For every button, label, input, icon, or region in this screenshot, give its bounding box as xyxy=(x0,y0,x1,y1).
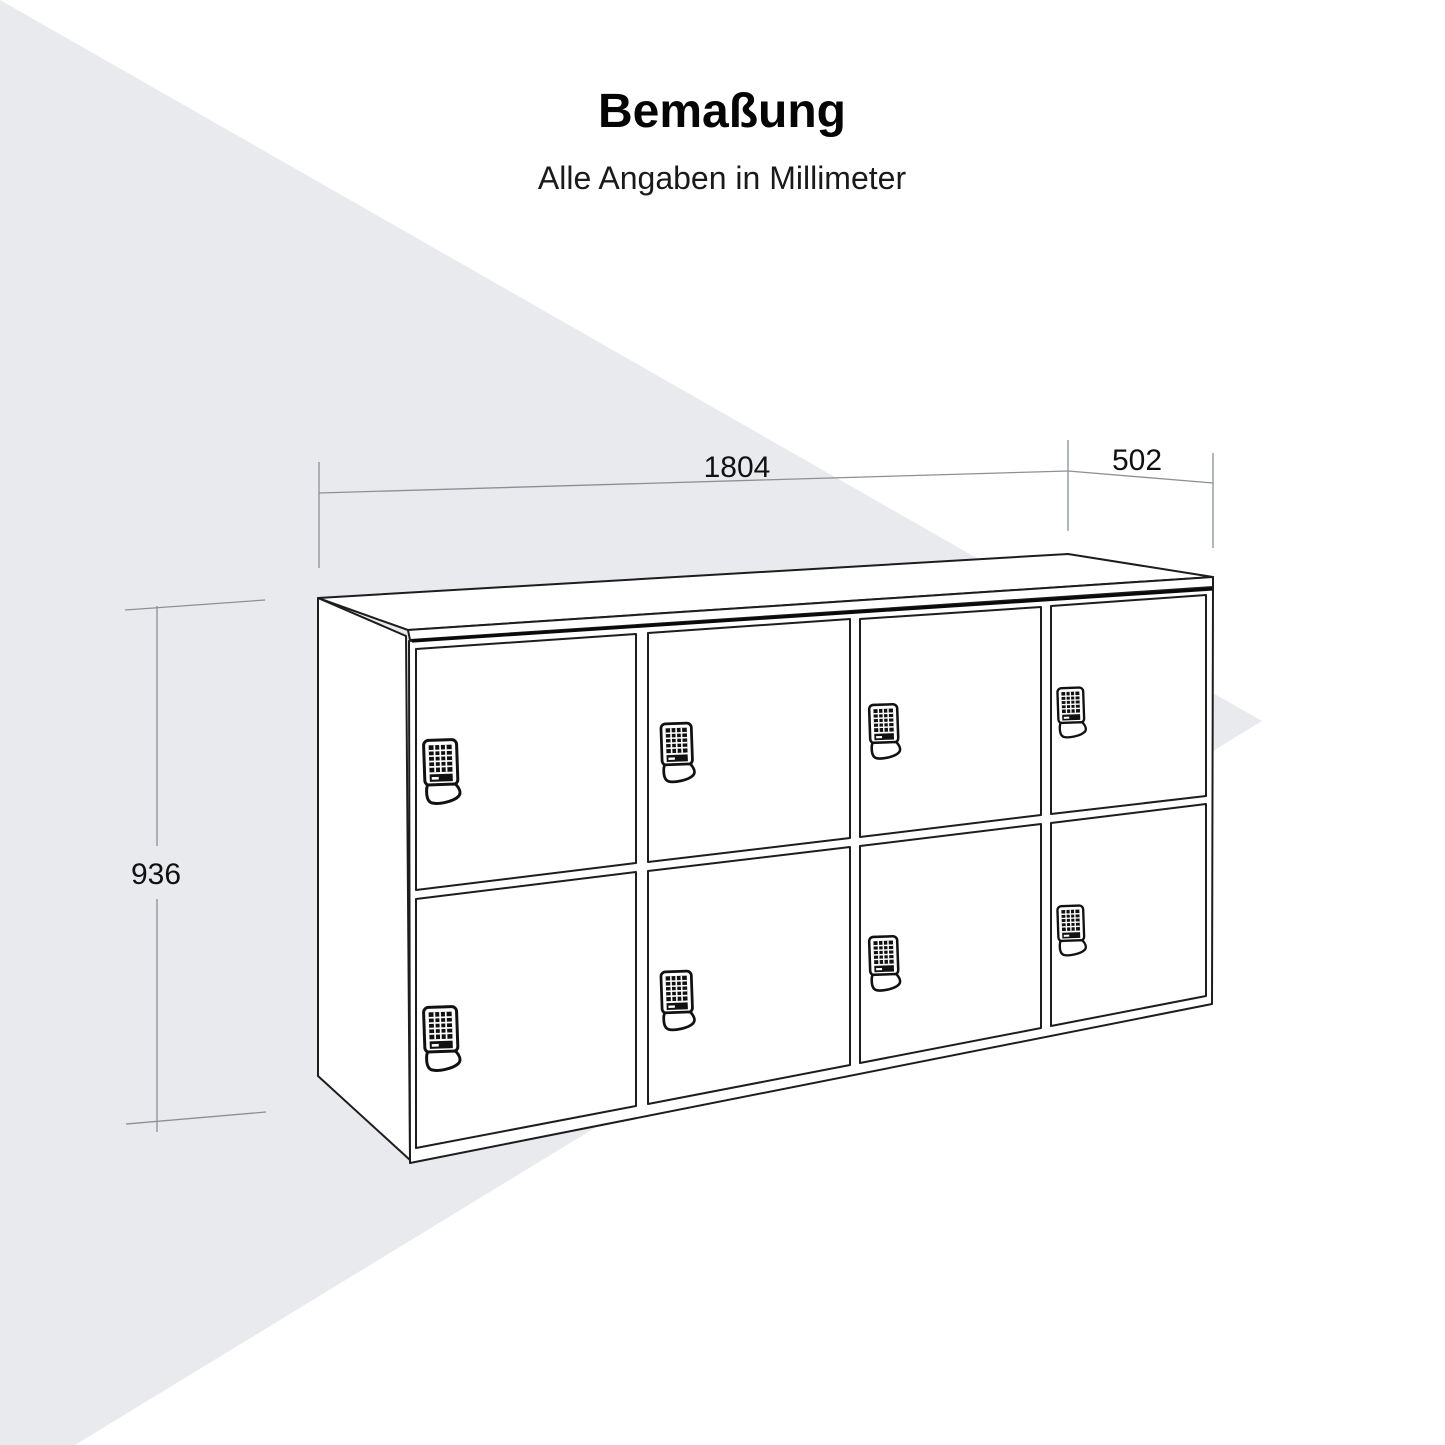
keypad-lock-icon xyxy=(661,723,695,782)
page-title: Bemaßung xyxy=(598,85,846,138)
dimension-drawing-page: 1804 502 936 Bemaßung Alle Angaben in Mi… xyxy=(0,0,1445,1445)
keypad-lock-icon xyxy=(423,739,460,803)
keypad-lock-icon xyxy=(1057,905,1086,955)
keypad-lock-icon xyxy=(661,971,695,1030)
keypad-lock-icon xyxy=(869,704,900,759)
keypad-lock-icon xyxy=(869,936,900,991)
dimension-label-height: 936 xyxy=(131,858,181,891)
locker-cabinet xyxy=(318,554,1213,1163)
dimension-label-depth: 502 xyxy=(1112,444,1162,477)
keypad-lock-icon xyxy=(423,1006,460,1070)
cabinet-left-side-panel xyxy=(318,598,410,1160)
locker-dimension-drawing: 1804 502 936 Bemaßung Alle Angaben in Mi… xyxy=(0,0,1445,1445)
dimension-label-width: 1804 xyxy=(704,451,771,484)
page-subtitle: Alle Angaben in Millimeter xyxy=(538,160,907,196)
keypad-lock-icon xyxy=(1057,687,1086,737)
